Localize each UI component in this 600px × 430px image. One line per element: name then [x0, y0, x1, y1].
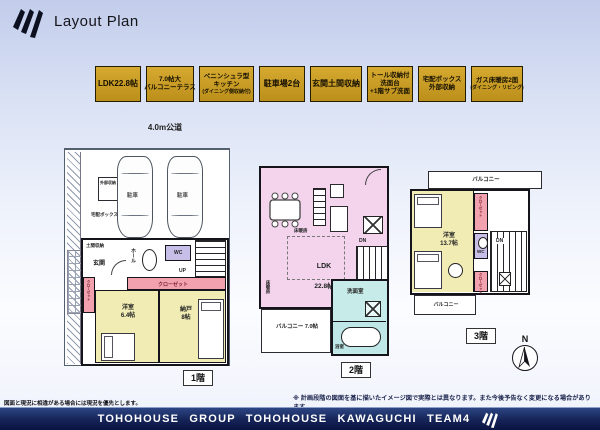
layout-plan-page: Layout Plan LDK22.8帖 7.0帖大 バルコニーテラス ペニンシ…	[0, 0, 600, 430]
room-storage-8: 納戸 8帖	[159, 290, 226, 363]
entrance-label: 玄関	[93, 258, 105, 267]
floor3-tag: 3階	[466, 328, 496, 344]
road-label: 4.0m公道	[110, 122, 220, 133]
floor-heating-label: 床暖房	[294, 228, 308, 234]
room-western-13_7: 洋室 13.7帖	[412, 191, 474, 292]
door-arc	[111, 260, 126, 275]
bed-icon	[198, 299, 224, 359]
wc-room: WC	[474, 233, 488, 259]
footer-bar: TOHOHOUSE GROUP TOHOHOUSE KAWAGUCHI TEAM…	[0, 407, 600, 430]
footer-logo-icon	[480, 411, 502, 428]
kitchen-counter-icon	[313, 188, 326, 226]
bathroom: 浴室	[333, 321, 386, 353]
badge-delivery-box: 宅配ボックス 外部収納	[418, 66, 466, 102]
badge-entrance-storage: 玄関土間収納	[310, 66, 362, 102]
wc-room: WC	[165, 245, 191, 261]
badge-floor-heating: ガス床暖房2面 (ダイニング・リビング)	[471, 66, 523, 102]
badge-peninsula-kitchen: ペニンシュラ型 キッチン (ダイニング側収納付)	[199, 66, 254, 102]
floor1-plan: 外部収納 宅配ボックス 駐車 駐車 土間収納 玄関 ホール WC UP	[64, 148, 230, 366]
bed-icon	[414, 194, 442, 228]
closet-top: クローゼット	[474, 193, 488, 231]
compass-north-label: N	[505, 334, 545, 344]
dn-label: DN	[359, 238, 366, 244]
badge-balcony-terrace: 7.0帖大 バルコニーテラス	[146, 66, 194, 102]
table-icon	[448, 263, 463, 278]
stairs-up	[195, 240, 226, 277]
storage-xbox-icon	[499, 272, 511, 286]
closet-bottom: クローゼット	[474, 271, 488, 292]
doma-storage-label: 土間収納	[86, 243, 104, 249]
floor-heating-label: 床暖房	[265, 280, 271, 294]
up-label: UP	[179, 268, 186, 274]
compass-icon	[512, 345, 538, 371]
car-icon: 駐車	[117, 156, 153, 238]
closet-side: クローゼット	[83, 277, 95, 313]
floor3-plan: バルコニー 洋室 13.7帖 クローゼット WC	[410, 167, 546, 325]
toilet-icon	[478, 237, 488, 249]
feature-badges: LDK22.8帖 7.0帖大 バルコニーテラス ペニンシュラ型 キッチン (ダイ…	[95, 66, 523, 102]
stairs-down	[356, 246, 388, 282]
kitchen-island-icon	[330, 206, 348, 232]
balcony-floor3-top: バルコニー	[428, 171, 542, 189]
refrigerator-icon	[330, 184, 344, 198]
dining-table-icon	[265, 192, 305, 228]
room-western-6_4: 洋室 6.4帖	[95, 290, 159, 363]
bed-icon	[101, 333, 135, 361]
floor1-tag: 1階	[183, 370, 213, 386]
closet: クローゼット	[127, 277, 226, 290]
washer-icon	[365, 301, 381, 317]
hall-label: ホール	[130, 248, 137, 263]
exterior-storage: 外部収納	[98, 177, 118, 201]
company-logo-icon	[12, 6, 48, 38]
floor3-building: 洋室 13.7帖 クローゼット WC DN クローゼット	[410, 189, 530, 295]
wet-area: 洗面室 浴室	[331, 279, 389, 356]
floor2-tag: 2階	[341, 362, 371, 378]
balcony-floor2: バルコニー 7.0帖	[261, 309, 331, 353]
storage-xbox-icon	[363, 216, 383, 234]
stairs-down: DN	[490, 231, 527, 292]
sub-washbasin-icon	[142, 249, 157, 271]
badge-tall-vanity: トール収納付 洗面台 +1階サブ洗面	[367, 66, 413, 102]
badge-parking: 駐車場2台	[259, 66, 305, 102]
balcony-floor3-bottom: バルコニー	[414, 295, 476, 315]
bed-icon	[414, 251, 442, 289]
washroom-label: 洗面室	[347, 287, 364, 295]
bathtub-icon	[341, 327, 381, 347]
footer-brand: TOHOHOUSE GROUP TOHOHOUSE KAWAGUCHI TEAM…	[98, 413, 471, 425]
floor2-plan: 床暖房 LDK 22.8帖 DN UP 床暖房 洗面室 浴室 バルコニー 7.0…	[259, 166, 389, 356]
door-arc	[365, 169, 381, 185]
delivery-box-label: 宅配ボックス	[91, 212, 118, 218]
car-icon: 駐車	[167, 156, 203, 238]
badge-ldk: LDK22.8帖	[95, 66, 141, 102]
page-title: Layout Plan	[54, 13, 139, 30]
floor1-building: 土間収納 玄関 ホール WC UP クローゼット クローゼット 洋室 6.4帖	[81, 238, 229, 366]
priority-note: 図面と現況に相違がある場合には現況を優先とします。	[4, 399, 141, 407]
